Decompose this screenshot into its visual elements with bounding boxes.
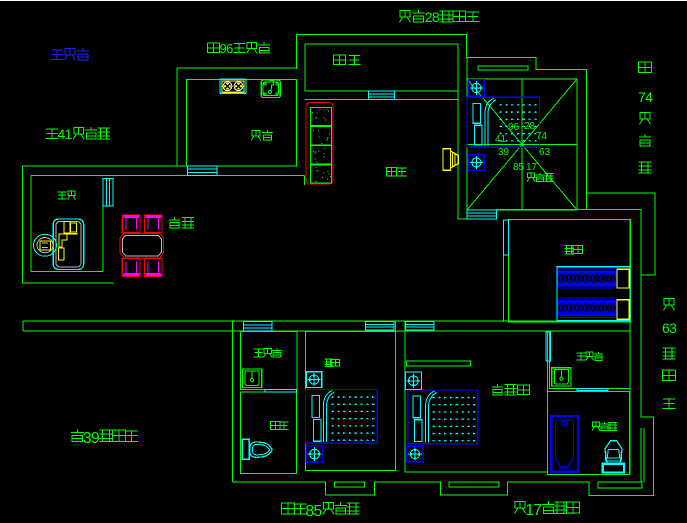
svg-text:17: 17 (526, 162, 538, 173)
svg-text:7: 7 (533, 502, 542, 519)
svg-text:28: 28 (524, 121, 536, 132)
svg-text:9: 9 (91, 430, 100, 447)
svg-text:5: 5 (313, 503, 322, 520)
svg-text:63: 63 (539, 147, 551, 158)
svg-text:41: 41 (495, 134, 507, 145)
svg-text:39: 39 (498, 147, 510, 158)
svg-text:1: 1 (65, 126, 73, 142)
svg-text:3: 3 (669, 320, 677, 336)
svg-text:96: 96 (508, 122, 520, 133)
svg-text:6: 6 (226, 41, 233, 56)
svg-text:8: 8 (432, 9, 440, 25)
svg-text:74: 74 (536, 131, 548, 142)
svg-text:85: 85 (513, 162, 525, 173)
svg-text:4: 4 (645, 89, 653, 105)
